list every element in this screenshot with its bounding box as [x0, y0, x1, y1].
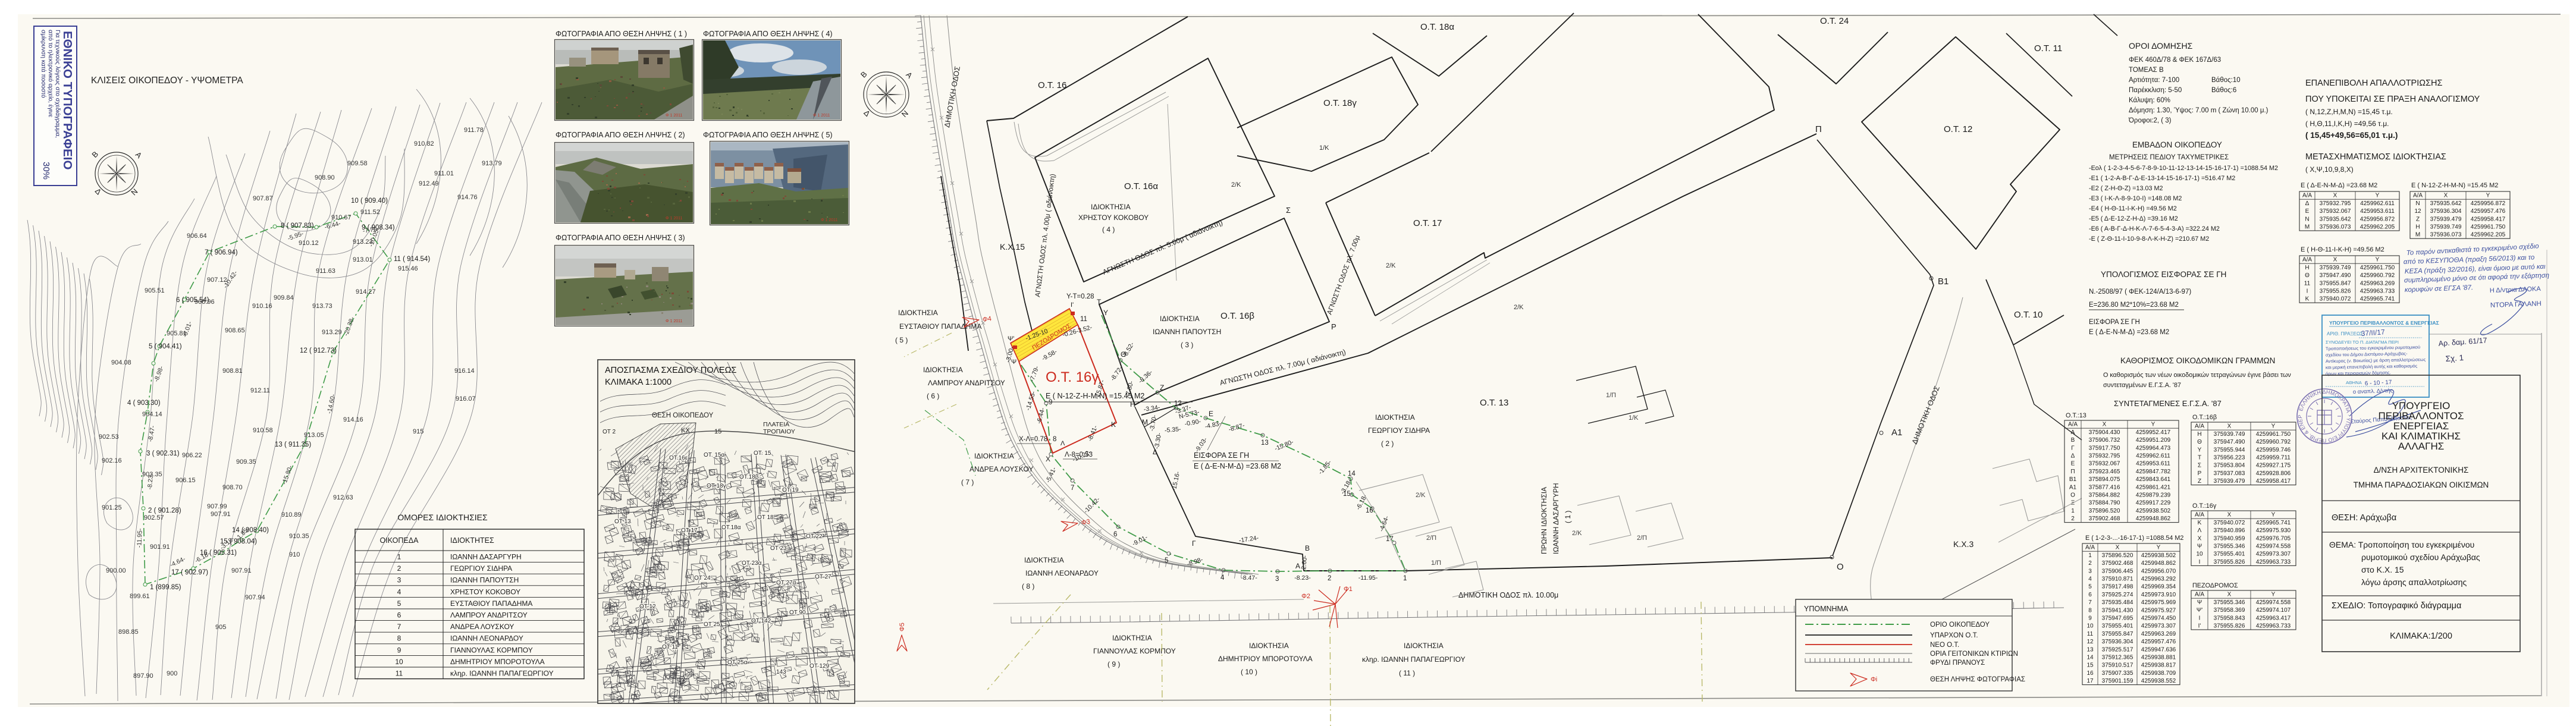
svg-text:Χ: Χ: [1046, 455, 1050, 463]
svg-text:4259961.750: 4259961.750: [2256, 431, 2291, 438]
svg-text:904.08: 904.08: [111, 359, 131, 366]
svg-text:Ι: Ι: [2199, 615, 2201, 621]
svg-text:4259879.239: 4259879.239: [2136, 492, 2171, 499]
svg-text:3 ( 902.31): 3 ( 902.31): [146, 450, 180, 457]
svg-text:2: 2: [1328, 575, 1331, 582]
svg-text:Ε ( Δ-Ε-Ν-Μ-Δ) =23.68 Μ2: Ε ( Δ-Ε-Ν-Μ-Δ) =23.68 Μ2: [2301, 182, 2377, 189]
svg-text:4259917.229: 4259917.229: [2136, 500, 2171, 507]
svg-text:4259963.733: 4259963.733: [2256, 623, 2291, 630]
svg-text:1: 1: [397, 553, 401, 561]
svg-text:-Ε4 ( Η-Θ-11-Ι-Κ-Η) =49.56 Μ: -Ε4 ( Η-Θ-11-Ι-Κ-Η) =49.56 Μ2: [2089, 205, 2177, 212]
svg-text:Π: Π: [2070, 469, 2075, 475]
svg-text:Ι': Ι': [1071, 301, 1074, 309]
svg-text:ΥΠΟΜΝΗΜΑ: ΥΠΟΜΝΗΜΑ: [1804, 605, 1849, 613]
svg-text:907.99: 907.99: [207, 503, 227, 510]
svg-text:ΟΤ 25: ΟΤ 25: [704, 621, 720, 628]
svg-text:ΚΑΘΟΡΙΣΜΟΣ ΟΙΚΟΔΟΜΙΚΩΝ ΓΡΑΜΜΩΝ: ΚΑΘΟΡΙΣΜΟΣ ΟΙΚΟΔΟΜΙΚΩΝ ΓΡΑΜΜΩΝ: [2120, 356, 2275, 365]
svg-text:4259948.862: 4259948.862: [2141, 560, 2176, 567]
svg-text:375955.944: 375955.944: [2214, 447, 2245, 453]
svg-text:Υ: Υ: [2198, 447, 2202, 453]
svg-text:Θ: Θ: [2305, 272, 2310, 279]
svg-text:( Χ,Ψ,10,9,8,Χ): ( Χ,Ψ,10,9,8,Χ): [2305, 165, 2354, 174]
svg-text:4259961.750: 4259961.750: [2471, 224, 2506, 231]
svg-text:Υ: Υ: [2271, 592, 2276, 598]
svg-text:Α/Α: Α/Α: [2302, 193, 2312, 199]
svg-text:( 3 ): ( 3 ): [1181, 341, 1193, 349]
svg-text:ΧΡΗΣΤΟΥ ΚΟΚΟΒΟΥ: ΧΡΗΣΤΟΥ ΚΟΚΟΒΟΥ: [1078, 213, 1149, 222]
svg-text:3: 3: [1275, 576, 1279, 583]
svg-text:4259973.307: 4259973.307: [2141, 623, 2176, 630]
svg-text:Ο: Ο: [1837, 562, 1844, 572]
svg-text:Μ: Μ: [2305, 224, 2310, 231]
svg-text:Η: Η: [1130, 400, 1135, 408]
svg-text:375955.401: 375955.401: [2102, 623, 2133, 630]
svg-text:375956.223: 375956.223: [2214, 455, 2245, 461]
svg-text:Ψ': Ψ': [2197, 607, 2202, 614]
svg-text:10: 10: [2196, 551, 2203, 558]
svg-text:5: 5: [2088, 584, 2092, 590]
svg-text:Ψ: Ψ: [2197, 599, 2202, 606]
svg-text:902.16: 902.16: [102, 457, 122, 464]
svg-text:Ο.Τ.:16γ: Ο.Τ.:16γ: [2192, 502, 2217, 510]
svg-text:375936.304: 375936.304: [2102, 639, 2133, 645]
svg-text:900.00: 900.00: [106, 567, 126, 574]
svg-text:375896.520: 375896.520: [2089, 508, 2120, 514]
svg-text:905: 905: [215, 624, 226, 631]
svg-text:ΙΔΙΟΚΤΗΣΙΑ: ΙΔΙΟΚΤΗΣΙΑ: [1091, 203, 1131, 211]
svg-text:ΙΔΙΟΚΤΗΣΙΑ: ΙΔΙΟΚΤΗΣΙΑ: [1024, 556, 1064, 564]
svg-text:375939.479: 375939.479: [2214, 478, 2245, 485]
svg-text:Δόμηση: 1.30, Ύψος: 7.00 m (: Δόμηση: 1.30, Ύψος: 7.00 m ( Ζώνη 10.00 …: [2129, 107, 2268, 114]
svg-text:Ε: Ε: [2071, 461, 2075, 467]
svg-text:ΦΡΥΔΙ ΠΡΑΝΟΥΣ: ΦΡΥΔΙ ΠΡΑΝΟΥΣ: [1930, 659, 1985, 667]
svg-text:1: 1: [2088, 552, 2092, 559]
svg-text:ΟΤ 90: ΟΤ 90: [789, 609, 806, 616]
svg-text:375925.517: 375925.517: [2102, 646, 2133, 653]
svg-text:906.22: 906.22: [182, 452, 202, 459]
svg-text:5: 5: [397, 599, 401, 608]
svg-text:7 ( 906.94): 7 ( 906.94): [205, 249, 238, 256]
svg-text:Φ 1 2011: Φ 1 2011: [666, 319, 683, 323]
svg-text:897.90: 897.90: [133, 672, 153, 680]
svg-text:902.53: 902.53: [99, 433, 119, 441]
svg-text:Ε=236.80 Μ2*10%=23.68 Μ2: Ε=236.80 Μ2*10%=23.68 Μ2: [2089, 301, 2179, 309]
svg-text:916.14: 916.14: [454, 367, 475, 375]
svg-text:ΟΤ. 15α: ΟΤ. 15α: [704, 452, 724, 458]
svg-text:4259938.709: 4259938.709: [2141, 670, 2176, 677]
svg-text:Κ.Χ.3: Κ.Χ.3: [1953, 539, 1973, 549]
svg-text:2/Κ: 2/Κ: [1572, 530, 1582, 537]
svg-text:910.35: 910.35: [289, 533, 309, 540]
svg-text:Ε: Ε: [1209, 410, 1213, 418]
svg-text:ΚΛΙΜΑΚΑ:1/200: ΚΛΙΜΑΚΑ:1/200: [2390, 631, 2452, 641]
svg-text:375917.498: 375917.498: [2102, 584, 2133, 590]
svg-text:Φ 1 2011: Φ 1 2011: [666, 216, 683, 221]
svg-text:Ζ: Ζ: [2198, 478, 2201, 485]
svg-text:9: 9: [397, 646, 401, 654]
svg-text:4259963.269: 4259963.269: [2360, 280, 2395, 287]
svg-text:ΙΔΙΟΚΤΗΣΙΑ: ΙΔΙΟΚΤΗΣΙΑ: [1404, 642, 1444, 650]
svg-text:375941.430: 375941.430: [2102, 607, 2133, 614]
svg-text:911.63: 911.63: [316, 268, 335, 275]
svg-text:Ο.Τ. 13: Ο.Τ. 13: [1480, 398, 1508, 408]
svg-text:1/Π: 1/Π: [1606, 392, 1616, 399]
svg-text:909.84: 909.84: [274, 294, 294, 301]
svg-text:Α/Α: Α/Α: [2195, 592, 2204, 598]
svg-text:8: 8: [1053, 436, 1056, 443]
svg-text:4259974.558: 4259974.558: [2256, 543, 2291, 550]
svg-text:ΟΤ 25α: ΟΤ 25α: [727, 659, 748, 666]
svg-text:375955.826: 375955.826: [2214, 559, 2245, 565]
svg-text:4259963.269: 4259963.269: [2141, 631, 2176, 637]
svg-text:375947.695: 375947.695: [2102, 615, 2133, 622]
svg-text:908.65: 908.65: [225, 327, 245, 334]
svg-text:Ι: Ι: [2199, 559, 2201, 565]
svg-text:-Εολ ( 1-2-3-4-5-6-7-8-9-10-11: -Εολ ( 1-2-3-4-5-6-7-8-9-10-11-12-13-14-…: [2089, 165, 2278, 172]
svg-text:7: 7: [2088, 599, 2092, 606]
svg-text:Χ: Χ: [2227, 512, 2232, 518]
svg-text:Δ/ΝΣΗ ΑΡΧΙΤΕΚΤΟΝΙΚΗΣ: Δ/ΝΣΗ ΑΡΧΙΤΕΚΤΟΝΙΚΗΣ: [2374, 466, 2469, 474]
svg-text:907.87: 907.87: [253, 195, 273, 202]
svg-text:1: 1: [1403, 575, 1407, 582]
svg-text:4259938.502: 4259938.502: [2141, 552, 2176, 559]
svg-text:ΑΠΟΣΠΑΣΜΑ ΣΧΕΔΙΟΥ ΠΟΛΕΩΣ: ΑΠΟΣΠΑΣΜΑ ΣΧΕΔΙΟΥ ΠΟΛΕΩΣ: [605, 366, 736, 375]
svg-text:Τ: Τ: [2198, 455, 2201, 461]
svg-text:Η: Η: [2197, 431, 2201, 438]
svg-text:907.91: 907.91: [211, 511, 231, 518]
svg-text:Σχ. 1: Σχ. 1: [2445, 353, 2464, 363]
svg-text:Η: Η: [2305, 265, 2309, 271]
svg-text:907.94: 907.94: [245, 594, 265, 601]
svg-text:Ν: Ν: [2415, 200, 2420, 207]
svg-text:910.82: 910.82: [414, 140, 434, 147]
svg-text:909.35: 909.35: [236, 458, 256, 466]
svg-text:4: 4: [2088, 576, 2092, 583]
svg-text:4259951.209: 4259951.209: [2136, 437, 2171, 444]
svg-text:375947.490: 375947.490: [2320, 272, 2351, 279]
svg-text:Ο.Τ. 16: Ο.Τ. 16: [1038, 80, 1066, 90]
svg-text:κληρ. ΙΩΑΝΝΗ ΠΑΠΑΓΕΩΡΓΙΟΥ: κληρ. ΙΩΑΝΝΗ ΠΑΠΑΓΕΩΡΓΙΟΥ: [450, 670, 554, 678]
svg-text:Χ: Χ: [2116, 545, 2120, 551]
svg-text:ΘΕΜΑ: Τροποποίηση του εγκεκριμ: ΘΕΜΑ: Τροποποίηση του εγκεκριμένου: [2329, 540, 2474, 549]
svg-text:375912.365: 375912.365: [2102, 655, 2133, 661]
svg-text:Υ-Τ=0.28: Υ-Τ=0.28: [1066, 293, 1094, 300]
svg-text:ΔΗΜΗΤΡΙΟΥ ΜΠΟΡΟΤΟΥΛΑ: ΔΗΜΗΤΡΙΟΥ ΜΠΟΡΟΤΟΥΛΑ: [1218, 655, 1313, 663]
svg-text:Γ: Γ: [1192, 539, 1196, 548]
svg-text:Α/Α: Α/Α: [2085, 545, 2095, 551]
svg-text:Φ 1 2011: Φ 1 2011: [666, 114, 683, 118]
svg-text:Ο.Τ. 12: Ο.Τ. 12: [1944, 124, 1972, 134]
svg-text:ΟΤ 17: ΟΤ 17: [681, 527, 698, 534]
svg-text:Ο.Τ. 16α: Ο.Τ. 16α: [1124, 181, 1158, 191]
svg-text:902.57: 902.57: [144, 514, 164, 521]
svg-text:4259847.782: 4259847.782: [2136, 469, 2171, 475]
svg-text:Γ: Γ: [2071, 445, 2075, 451]
svg-text:Βάθος:10: Βάθος:10: [2211, 77, 2241, 84]
svg-text:Δ: Δ: [2071, 453, 2075, 460]
svg-text:ΜΕΤΡΗΣΕΙΣ ΠΕΔΙΟΥ ΤΑΧΥΜΕΤΡΙΚΕΣ: ΜΕΤΡΗΣΕΙΣ ΠΕΔΙΟΥ ΤΑΧΥΜΕΤΡΙΚΕΣ: [2109, 154, 2229, 161]
svg-text:Χ: Χ: [2444, 193, 2448, 199]
svg-text:ΙΔΙΟΚΤΗΣΙΑ: ΙΔΙΟΚΤΗΣΙΑ: [1160, 315, 1200, 323]
svg-text:ΕΘΝΙΚΟ ΤΥΠΟΓΡΑΦΕΙΟ: ΕΘΝΙΚΟ ΤΥΠΟΓΡΑΦΕΙΟ: [61, 31, 74, 169]
svg-text:Β1: Β1: [2069, 476, 2077, 483]
svg-text:Ο.Τ. 16β: Ο.Τ. 16β: [1220, 311, 1254, 321]
svg-text:ΠΕΖΟΔΡΟΜΟΣ: ΠΕΖΟΔΡΟΜΟΣ: [2192, 582, 2238, 589]
svg-text:2: 2: [2071, 516, 2075, 522]
svg-text:ΟΤ 23α: ΟΤ 23α: [742, 560, 762, 567]
svg-text:906.96: 906.96: [194, 298, 215, 306]
svg-text:ΠΛΑΤΕΙΑ: ΠΛΑΤΕΙΑ: [763, 421, 789, 428]
svg-text:-2.60-: -2.60-: [1300, 555, 1309, 572]
svg-text:913.79: 913.79: [482, 160, 502, 167]
svg-text:ΟΤ 19: ΟΤ 19: [782, 487, 799, 494]
svg-text:1/Κ: 1/Κ: [1629, 414, 1639, 422]
svg-text:37/ΙΙ/17: 37/ΙΙ/17: [2361, 328, 2385, 338]
svg-text:ΛΑΜΠΡΟΥ ΑΝΔΡΙΤΣΟΥ: ΛΑΜΠΡΟΥ ΑΝΔΡΙΤΣΟΥ: [928, 379, 1005, 387]
svg-text:912.63: 912.63: [333, 494, 353, 501]
svg-text:-5.35-: -5.35-: [1165, 426, 1182, 434]
svg-text:ΟΤ 23: ΟΤ 23: [770, 545, 787, 552]
svg-text:2/Π: 2/Π: [1426, 535, 1436, 542]
svg-text:ΑΘΗΝΑ: ΑΘΗΝΑ: [2346, 380, 2362, 385]
svg-text:( 11 ): ( 11 ): [1399, 669, 1415, 677]
svg-text:11: 11: [2087, 631, 2094, 637]
svg-text:9: 9: [1049, 399, 1052, 406]
svg-text:13: 13: [2086, 646, 2094, 653]
svg-text:910.58: 910.58: [253, 427, 273, 434]
svg-text:( 10 ): ( 10 ): [1241, 668, 1257, 676]
svg-text:375907.335: 375907.335: [2102, 670, 2133, 677]
svg-text:916.07: 916.07: [456, 395, 476, 403]
svg-text:ΔΗΜΗΤΡΙΟΥ ΜΠΟΡΟΤΟΥΛΑ: ΔΗΜΗΤΡΙΟΥ ΜΠΟΡΟΤΟΥΛΑ: [450, 658, 545, 666]
svg-text:Α/Α: Α/Α: [2068, 422, 2078, 428]
svg-text:Ο.Τ. 10: Ο.Τ. 10: [2014, 310, 2042, 320]
svg-text:Υ: Υ: [2157, 545, 2161, 551]
svg-text:908.81: 908.81: [222, 367, 243, 375]
svg-text:7: 7: [1071, 485, 1074, 492]
svg-text:13 ( 911.35): 13 ( 911.35): [275, 441, 311, 448]
svg-text:( 6 ): ( 6 ): [927, 392, 939, 400]
svg-text:4259960.792: 4259960.792: [2256, 439, 2291, 445]
svg-text:375936.304: 375936.304: [2430, 208, 2462, 215]
svg-text:ΙΩΑΝΝΗ ΔΑΣΑΡΓΥΡΗ: ΙΩΑΝΝΗ ΔΑΣΑΡΓΥΡΗ: [450, 553, 522, 561]
svg-text:ΟΤ 24: ΟΤ 24: [694, 575, 711, 582]
svg-text:4: 4: [1220, 574, 1225, 582]
svg-text:901.91: 901.91: [150, 543, 170, 551]
svg-text:4259843.641: 4259843.641: [2136, 476, 2171, 483]
svg-text:-8.23-: -8.23-: [146, 473, 155, 490]
svg-text:2: 2: [397, 564, 401, 573]
svg-text:4259957.476: 4259957.476: [2141, 639, 2176, 645]
svg-text:Παρέκκλιση: 5-50: Παρέκκλιση: 5-50: [2129, 87, 2182, 94]
svg-text:375906.445: 375906.445: [2102, 568, 2133, 574]
svg-text:ΘΕΣΗ ΟΙΚΟΠΕΔΟΥ: ΘΕΣΗ ΟΙΚΟΠΕΔΟΥ: [652, 412, 714, 419]
svg-text:4259938.502: 4259938.502: [2136, 508, 2171, 514]
svg-text:375925.274: 375925.274: [2102, 592, 2133, 598]
svg-text:4259962.611: 4259962.611: [2136, 453, 2170, 460]
svg-text:ΚΛΙΣΕΙΣ ΟΙΚΟΠΕΔΟΥ - ΥΨΟΜΕΤΡΑ: ΚΛΙΣΕΙΣ ΟΙΚΟΠΕΔΟΥ - ΥΨΟΜΕΤΡΑ: [91, 76, 243, 86]
svg-text:( 5 ): ( 5 ): [895, 336, 908, 344]
svg-text:Χ: Χ: [2103, 422, 2107, 428]
svg-text:Π: Π: [1815, 124, 1822, 134]
svg-text:ΑΡΙΘ. ΠΡΑΞΕΩΣ:: ΑΡΙΘ. ΠΡΑΞΕΩΣ:: [2327, 331, 2364, 337]
svg-text:Ν: Ν: [2305, 216, 2309, 222]
svg-text:4259974.558: 4259974.558: [2256, 599, 2291, 606]
svg-text:4259947.636: 4259947.636: [2141, 646, 2176, 653]
svg-text:14: 14: [2086, 655, 2094, 661]
svg-text:15: 15: [2086, 662, 2094, 669]
svg-text:30%: 30%: [41, 162, 51, 180]
svg-text:ΓΕΩΡΓΙΟΥ ΣΙΔΗΡΑ: ΓΕΩΡΓΙΟΥ ΣΙΔΗΡΑ: [450, 564, 512, 573]
svg-text:9: 9: [2088, 615, 2092, 622]
svg-text:ΕΠΑΝΕΠΙΒΟΛΗ ΑΠΑΛΛΟΤΡΙΩΣΗΣ: ΕΠΑΝΕΠΙΒΟΛΗ ΑΠΑΛΛΟΤΡΙΩΣΗΣ: [2305, 78, 2443, 88]
svg-text:12 ( 912.73): 12 ( 912.73): [300, 347, 337, 354]
svg-text:17 ( 902.97): 17 ( 902.97): [171, 569, 208, 576]
svg-text:ΦΕΚ 460Δ/78 & ΦΕΚ 167Δ/63: ΦΕΚ 460Δ/78 & ΦΕΚ 167Δ/63: [2129, 56, 2221, 64]
svg-text:375904.430: 375904.430: [2089, 429, 2120, 436]
svg-text:4259962.205: 4259962.205: [2471, 232, 2506, 238]
svg-text:907.91: 907.91: [231, 567, 252, 574]
svg-text:11 ( 914.54): 11 ( 914.54): [394, 256, 430, 263]
svg-text:10: 10: [395, 658, 403, 666]
svg-text:2 ( 901.28): 2 ( 901.28): [148, 507, 181, 514]
svg-text:375906.732: 375906.732: [2089, 437, 2120, 444]
svg-text:( 9 ): ( 9 ): [1107, 660, 1120, 668]
svg-text:ΧΡΗΣΤΟΥ ΚΟΚΟΒΟΥ: ΧΡΗΣΤΟΥ ΚΟΚΟΒΟΥ: [450, 587, 520, 596]
svg-text:4259963.417: 4259963.417: [2256, 615, 2291, 621]
svg-text:911.01: 911.01: [434, 170, 454, 177]
svg-text:375884.790: 375884.790: [2089, 500, 2120, 507]
svg-text:ΠΟΥ ΥΠΟΚΕΙΤΑΙ ΣΕ ΠΡΑΞΗ ΑΝΑΛΟΓΙ: ΠΟΥ ΥΠΟΚΕΙΤΑΙ ΣΕ ΠΡΑΞΗ ΑΝΑΛΟΓΙΣΜΟΥ: [2305, 95, 2480, 104]
svg-text:ΟΤ 22: ΟΤ 22: [806, 533, 823, 540]
svg-text:4259861.421: 4259861.421: [2136, 484, 2171, 491]
svg-text:Ε: Ε: [2305, 208, 2310, 215]
svg-text:Λ: Λ: [2198, 527, 2202, 534]
svg-text:5 ( 904.41): 5 ( 904.41): [149, 343, 182, 350]
svg-text:-Ε1 ( 1-2-Α-Β-Γ-Δ-Ε-13-14-15-1: -Ε1 ( 1-2-Α-Β-Γ-Δ-Ε-13-14-15-16-17-1) =5…: [2089, 175, 2235, 182]
svg-text:Α/Α: Α/Α: [2413, 193, 2423, 199]
svg-text:Ψ': Ψ': [1008, 335, 1014, 342]
svg-text:375894.075: 375894.075: [2089, 476, 2120, 483]
svg-text:Βάθος:6: Βάθος:6: [2211, 87, 2236, 94]
svg-text:ΕΙΣΦΟΡΑ ΣΕ ΓΗ: ΕΙΣΦΟΡΑ ΣΕ ΓΗ: [1194, 451, 1249, 460]
svg-text:ΣΥΝΤΕΤΑΓΜΕΝΕΣ Ε.Γ.Σ.Α. '87: ΣΥΝΤΕΤΑΓΜΕΝΕΣ Ε.Γ.Σ.Α. '87: [2114, 399, 2222, 408]
svg-text:11: 11: [1080, 316, 1087, 323]
svg-text:906.15: 906.15: [175, 477, 196, 484]
svg-text:4259938.552: 4259938.552: [2141, 678, 2176, 684]
svg-text:Κ: Κ: [2305, 296, 2310, 303]
svg-text:1/Κ: 1/Κ: [1319, 144, 1329, 152]
svg-text:Λ: Λ: [1060, 440, 1065, 447]
svg-text:Ι: Ι: [2307, 288, 2308, 295]
svg-text:910.12: 910.12: [299, 240, 319, 247]
svg-text:Αρτιότητα: 7-100: Αρτιότητα: 7-100: [2129, 77, 2179, 84]
svg-text:375940.959: 375940.959: [2214, 535, 2245, 542]
svg-text:ΟΤ 18γ: ΟΤ 18γ: [707, 483, 726, 489]
svg-text:375937.083: 375937.083: [2214, 470, 2245, 477]
svg-text:Ο.Τ. 24: Ο.Τ. 24: [1820, 16, 1849, 26]
svg-text:Α: Α: [2071, 429, 2075, 436]
svg-text:Χ-Λ=0.78: Χ-Λ=0.78: [1019, 436, 1047, 443]
svg-text:4259938.817: 4259938.817: [2141, 662, 2176, 669]
svg-text:Ψ: Ψ: [2197, 543, 2202, 550]
svg-text:3: 3: [397, 576, 401, 584]
svg-text:4259974.107: 4259974.107: [2256, 607, 2291, 614]
svg-text:ΟΜΟΡΕΣ ΙΔΙΟΚΤΗΣΙΕΣ: ΟΜΟΡΕΣ ΙΔΙΟΚΤΗΣΙΕΣ: [397, 513, 488, 522]
svg-text:910.89: 910.89: [281, 511, 302, 518]
svg-text:ΦΩΤΟΓΡΑΦΙΑ ΑΠΟ ΘΕΣΗ ΛΗΨΗΣ ( 5: ΦΩΤΟΓΡΑΦΙΑ ΑΠΟ ΘΕΣΗ ΛΗΨΗΣ ( 5): [703, 131, 833, 139]
svg-text:915: 915: [413, 428, 423, 435]
svg-text:913.01: 913.01: [353, 256, 373, 263]
svg-text:906.64: 906.64: [187, 232, 207, 240]
svg-text:Θ: Θ: [2197, 439, 2202, 445]
svg-text:ΟΡΙΟ ΟΙΚΟΠΕΔΟΥ: ΟΡΙΟ ΟΙΚΟΠΕΔΟΥ: [1930, 621, 1990, 628]
svg-text:ΙΩΑΝΝΗ ΠΑΠΟΥΤΣΗ: ΙΩΑΝΝΗ ΠΑΠΟΥΤΣΗ: [450, 576, 519, 584]
svg-text:10: 10: [2086, 623, 2094, 630]
svg-text:2/Κ: 2/Κ: [1514, 304, 1524, 311]
svg-text:ΙΩΑΝΝΗ ΔΑΣΑΡΓΥΡΗ: ΙΩΑΝΝΗ ΔΑΣΑΡΓΥΡΗ: [1552, 483, 1560, 554]
svg-text:4259956.872: 4259956.872: [2360, 216, 2395, 222]
svg-text:375917.750: 375917.750: [2089, 445, 2120, 451]
svg-text:6: 6: [2088, 592, 2092, 598]
svg-text:2/Κ: 2/Κ: [1416, 492, 1426, 499]
svg-text:Σ: Σ: [2198, 463, 2201, 469]
svg-text:Υ: Υ: [2271, 512, 2276, 518]
svg-text:911.52: 911.52: [360, 209, 380, 216]
svg-text:Ρ: Ρ: [1331, 322, 1336, 331]
svg-text:κληρ. ΙΩΑΝΝΗ ΠΑΠΑΓΕΩΡΓΙΟΥ: κληρ. ΙΩΑΝΝΗ ΠΑΠΑΓΕΩΡΓΙΟΥ: [1362, 655, 1466, 664]
svg-text:4259952.417: 4259952.417: [2136, 429, 2171, 436]
svg-text:Ε ( Δ-Ε-Ν-Μ-Δ) =23.68 Μ2: Ε ( Δ-Ε-Ν-Μ-Δ) =23.68 Μ2: [1194, 462, 1281, 470]
svg-text:Α1: Α1: [2069, 484, 2077, 491]
svg-text:ΟΤ 2: ΟΤ 2: [603, 429, 616, 435]
svg-text:ΟΤ 12: ΟΤ 12: [639, 604, 656, 610]
svg-text:375955.826: 375955.826: [2320, 288, 2351, 295]
svg-text:904.14: 904.14: [142, 411, 162, 418]
svg-text:913.05: 913.05: [304, 432, 324, 439]
svg-text:16: 16: [2086, 670, 2094, 677]
svg-text:910.16: 910.16: [252, 303, 272, 310]
svg-text:ΑΝΔΡΕΑ ΛΟΥΣΚΟΥ: ΑΝΔΡΕΑ ΛΟΥΣΚΟΥ: [969, 465, 1033, 473]
svg-text:ΟΤ.16ε: ΟΤ.16ε: [669, 455, 688, 461]
svg-text:Ν.-2508/97 ( ΦΕΚ-124/Α/13-6-: Ν.-2508/97 ( ΦΕΚ-124/Α/13-6-97): [2089, 288, 2191, 296]
svg-text:Φ1: Φ1: [1344, 586, 1353, 593]
svg-text:912.11: 912.11: [250, 387, 270, 394]
svg-text:375936.073: 375936.073: [2430, 232, 2462, 238]
svg-text:4259963.733: 4259963.733: [2256, 559, 2291, 565]
svg-text:ΙΔΙΟΚΤΗΣΙΑ: ΙΔΙΟΚΤΗΣΙΑ: [1249, 642, 1289, 650]
svg-text:375901.159: 375901.159: [2102, 678, 2133, 684]
svg-text:4259962.611: 4259962.611: [2360, 200, 2395, 207]
svg-text:-Ε5 ( Δ-Ε-12-Ζ-Η-Δ) =39.16 Μ: -Ε5 ( Δ-Ε-12-Ζ-Η-Δ) =39.16 Μ2: [2089, 215, 2178, 222]
svg-text:ΑΝΔΡΕΑ ΛΟΥΣΚΟΥ: ΑΝΔΡΕΑ ΛΟΥΣΚΟΥ: [450, 623, 514, 631]
svg-text:4259960.792: 4259960.792: [2360, 272, 2395, 279]
svg-text:ΙΔΙΟΚΤΗΣΙΑ: ΙΔΙΟΚΤΗΣΙΑ: [1112, 634, 1152, 642]
svg-text:ΟΤ. 15: ΟΤ. 15: [754, 450, 771, 457]
svg-text:4259973.910: 4259973.910: [2141, 592, 2176, 598]
svg-text:Α/Α: Α/Α: [2195, 512, 2204, 518]
svg-text:ΤΟΜΕΑΣ Β: ΤΟΜΕΑΣ Β: [2129, 67, 2164, 74]
svg-text:915.46: 915.46: [398, 265, 418, 272]
svg-text:ΜΕΤΑΣΧΗΜΑΤΙΣΜΟΣ ΙΔΙΟΚΤΗΣΙΑΣ: ΜΕΤΑΣΧΗΜΑΤΙΣΜΟΣ ΙΔΙΟΚΤΗΣΙΑΣ: [2305, 152, 2446, 162]
svg-text:Φ4: Φ4: [982, 315, 992, 323]
svg-text:4259961.750: 4259961.750: [2360, 265, 2395, 271]
svg-text:( Η,Θ,11,Ι,Κ,Η) =49,56 τ.μ.: ( Η,Θ,11,Ι,Κ,Η) =49,56 τ.μ.: [2305, 120, 2389, 128]
svg-text:908.70: 908.70: [222, 484, 243, 491]
svg-text:Όροφοι:2, ( 3): Όροφοι:2, ( 3): [2128, 117, 2172, 124]
svg-text:4: 4: [397, 587, 401, 596]
svg-text:914.27: 914.27: [356, 288, 376, 296]
